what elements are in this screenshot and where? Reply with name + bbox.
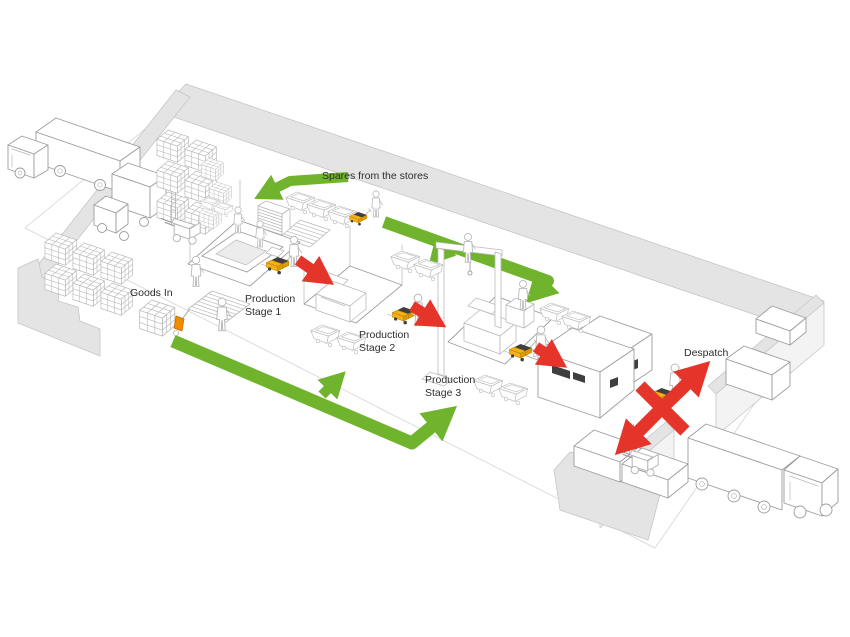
- crate-stack: [73, 274, 104, 306]
- label-goods-in: Goods In: [130, 287, 173, 299]
- diagram-canvas: Spares from the stores Goods In Producti…: [0, 0, 850, 637]
- label-despatch: Despatch: [684, 347, 729, 359]
- control-console: [506, 298, 534, 328]
- outbound-truck: [688, 424, 838, 518]
- factory-flow-diagram: Spares from the stores Goods In Producti…: [0, 0, 850, 637]
- crate-stack: [101, 283, 132, 315]
- flow-arrow-goods-in-branch: [322, 379, 338, 395]
- hand-truck: [173, 310, 189, 336]
- goods-in-crate: [140, 300, 175, 336]
- label-spares: Spares from the stores: [322, 170, 428, 182]
